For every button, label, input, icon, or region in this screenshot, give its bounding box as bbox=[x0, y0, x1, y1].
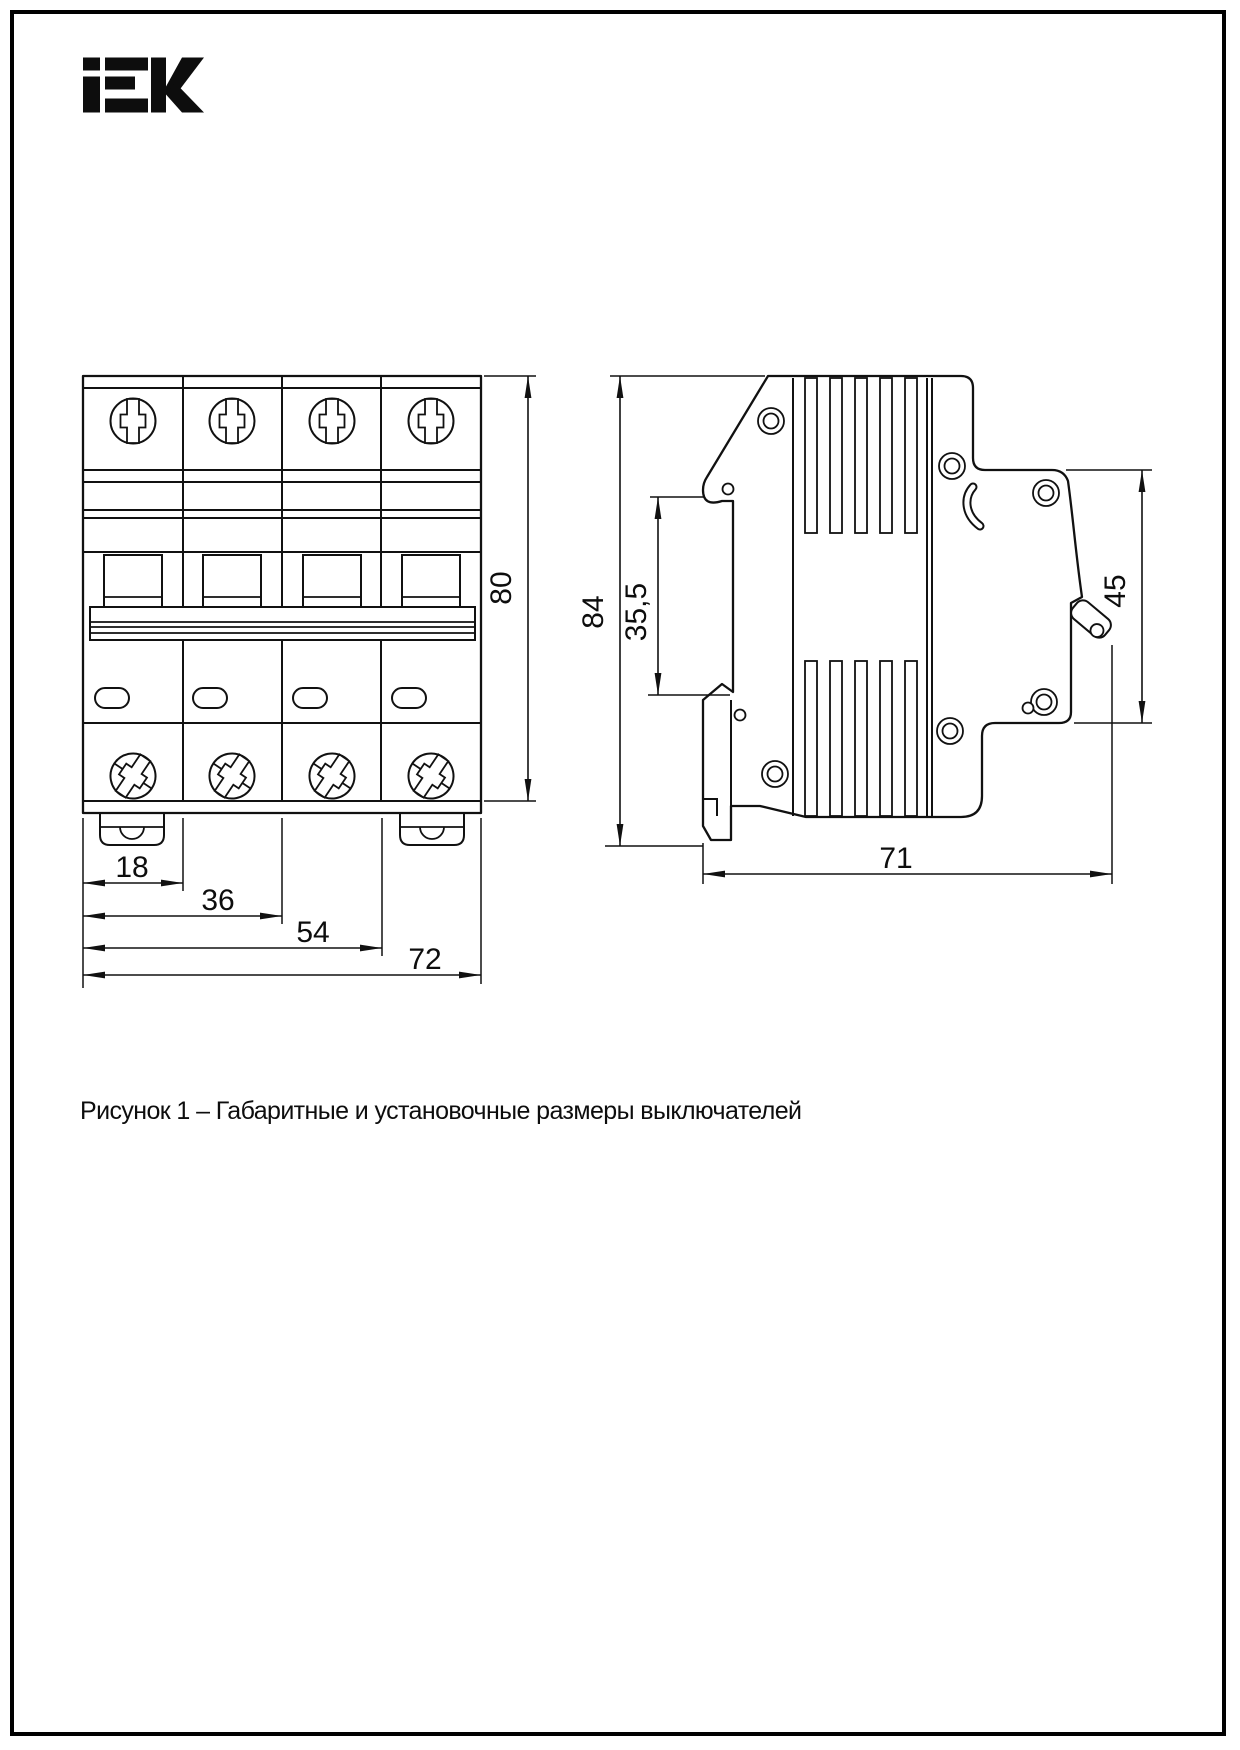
front-width-dimensions: 18 36 54 72 bbox=[83, 818, 481, 988]
dim-72-label: 72 bbox=[408, 943, 441, 976]
dim-80: 80 bbox=[484, 376, 536, 801]
dim-18: 18 bbox=[83, 851, 183, 884]
dim-18-label: 18 bbox=[115, 851, 148, 884]
dim-80-label: 80 bbox=[485, 571, 518, 604]
screw-icon bbox=[310, 399, 355, 444]
dim-35-5: 35,5 bbox=[620, 497, 730, 695]
dim-54: 54 bbox=[83, 916, 382, 949]
screw-icon bbox=[210, 399, 255, 444]
rivet-icon bbox=[937, 718, 963, 744]
din-clip bbox=[100, 813, 164, 845]
dim-84-label: 84 bbox=[577, 595, 610, 628]
pin-icon bbox=[1023, 703, 1034, 714]
figure-caption: Рисунок 1 – Габаритные и установочные ра… bbox=[80, 1097, 980, 1126]
pin-icon bbox=[735, 710, 746, 721]
dim-36-label: 36 bbox=[201, 884, 234, 917]
screw-icon bbox=[111, 399, 156, 444]
pin-icon bbox=[723, 484, 734, 495]
dim-45-label: 45 bbox=[1099, 574, 1132, 607]
screw-icon bbox=[409, 399, 454, 444]
rivet-icon bbox=[1033, 480, 1059, 506]
rivet-icon bbox=[758, 408, 784, 434]
dim-71-label: 71 bbox=[879, 842, 912, 875]
side-view: Габаритные размеры — вид сбоку bbox=[577, 376, 1152, 884]
dim-54-label: 54 bbox=[296, 916, 329, 949]
dim-35-5-label: 35,5 bbox=[620, 583, 653, 641]
rivet-icon bbox=[939, 453, 965, 479]
din-clip bbox=[400, 813, 464, 845]
front-view: Габаритные размеры — вид спереди bbox=[83, 376, 536, 988]
tie-bar bbox=[90, 607, 475, 640]
rivet-icon bbox=[762, 761, 788, 787]
rivet-icon bbox=[1031, 689, 1057, 715]
technical-drawing: Габаритные размеры — вид спереди bbox=[0, 0, 1240, 1060]
